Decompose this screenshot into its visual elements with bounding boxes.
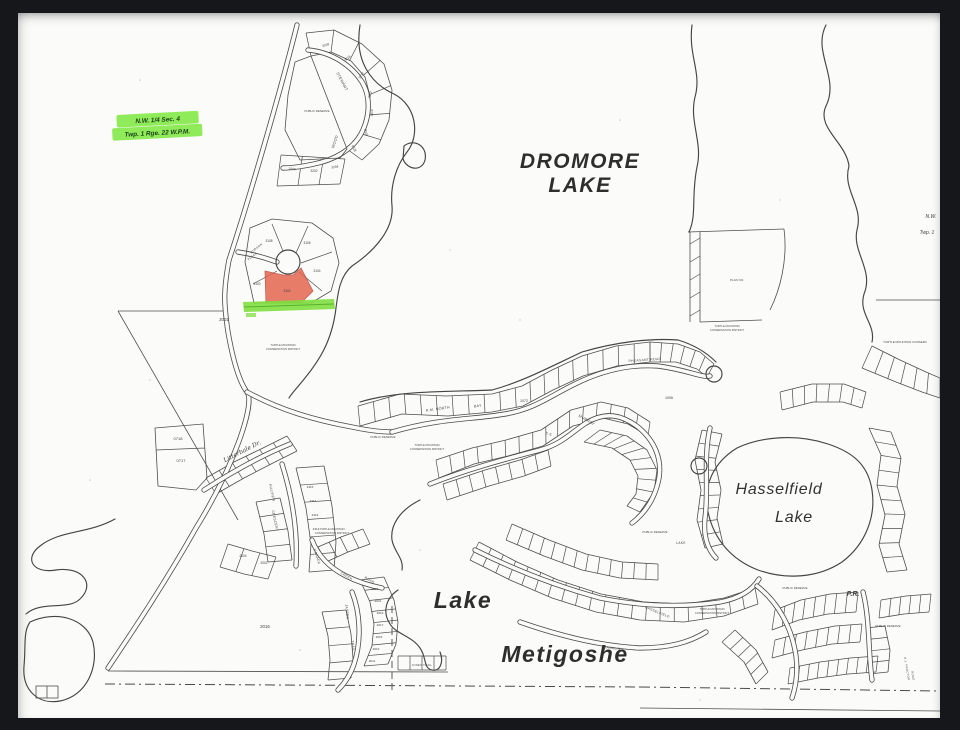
lot-boundary-line: [730, 637, 743, 649]
lot-strip-se-6: [722, 630, 768, 684]
lot-boundary-line: [360, 580, 374, 666]
lot-boundary-line: [509, 463, 512, 479]
plan-road-hatch: [690, 274, 700, 280]
lot-boundary-line: [352, 533, 359, 548]
lot-boundary-line: [788, 672, 876, 684]
subdivision-south-edge: [640, 708, 940, 711]
lot-number: 2315: [307, 485, 314, 489]
lot-boundary-line: [540, 538, 545, 554]
lot-boundary-line: [535, 455, 538, 471]
lot-boundary-line: [528, 533, 533, 549]
hudson-lot-line: [272, 224, 283, 251]
shoreline-hasselfield-lake: [706, 438, 872, 577]
road-label-jasper: JASPER: [344, 604, 350, 620]
label-dromore-lake-2: LAKE: [548, 174, 611, 197]
lot-boundary-line: [522, 459, 525, 475]
lot-boundary-line: [638, 479, 656, 480]
lot-boundary-line: [862, 392, 866, 408]
lot-boundary-line: [277, 184, 340, 186]
road-label-jones-trail: JONES TRAIL: [412, 663, 433, 667]
lot-boundary-line: [548, 450, 551, 466]
plan-parcel-south: [700, 320, 762, 322]
lot-boundary-line: [722, 630, 735, 642]
lot-boundary-line: [452, 396, 453, 416]
lot-boundary-line: [551, 542, 555, 558]
lot-number: 3208: [363, 128, 369, 136]
lot-boundary-line: [881, 455, 901, 458]
lot-boundary-line: [436, 396, 437, 416]
lot-boundary-line: [322, 612, 330, 680]
lot-number-red-parcel: 3102: [283, 289, 290, 293]
lot-strip-hasselfield-east: [869, 428, 907, 572]
lot-boundary-line: [450, 455, 452, 472]
dashed-section-line-bottom-right: [640, 687, 940, 691]
lot-number: 2015: [376, 635, 383, 639]
plat-map-svg: N.W. 1/4 Sec. 4 Twp. 1 Rge. 22 W.P.M. DR…: [18, 13, 940, 718]
lot-boundary-line: [698, 520, 718, 523]
lot-boundary-line: [630, 458, 651, 461]
lot-boundary-line: [621, 562, 622, 578]
lot-strip-murray-upper: [436, 402, 650, 478]
lot-boundary-line: [252, 553, 260, 576]
district-text: CONSERVATION DISTRICT: [315, 531, 350, 535]
lot-boundary-line: [849, 625, 851, 643]
lot-boundary-line: [722, 642, 756, 684]
district-text: TURTLE MOUNTAIN: [714, 324, 739, 328]
road-label-stewart: STEWART: [335, 72, 348, 92]
corner-note-twp: Twp. 1: [920, 230, 935, 236]
lot-boundary-line: [604, 435, 624, 446]
lot-boundary-line: [329, 644, 352, 646]
lot-boundary-line: [468, 395, 469, 414]
lot-boundary-line: [860, 624, 862, 642]
lot-boundary-line: [782, 402, 862, 410]
plan-parcel-east: [770, 229, 785, 310]
lot-boundary-line: [594, 433, 612, 444]
lot-boundary-line: [803, 599, 806, 619]
lot-boundary-line: [816, 629, 819, 647]
shoreline-dromore-pond: [403, 143, 425, 168]
parcel-number-2002: 2002: [260, 561, 267, 565]
parcel-number-1072: 1072: [520, 399, 528, 403]
lot-boundary-line: [515, 388, 516, 408]
lot-boundary-line: [816, 384, 817, 402]
lot-boundary-line: [633, 498, 647, 502]
lot-number: 3210: [370, 109, 374, 116]
lot-boundary-line: [331, 30, 334, 52]
district-label-3: TURTLE MOUNTAIN CONSERVATION DISTRICT: [315, 527, 350, 535]
lot-boundary-line: [914, 368, 917, 389]
lot-boundary-line: [563, 547, 567, 563]
lot-boundary-line: [277, 155, 281, 186]
lot-boundary-line: [586, 555, 589, 571]
district-text: TURTLE MOUNTAIN: [270, 343, 295, 347]
label-pr: P.R.: [847, 591, 860, 598]
lot-boundary-line: [828, 384, 830, 402]
lot-boundary-line: [298, 156, 302, 185]
lot-number: 3108: [265, 239, 272, 243]
lot-boundary-line: [837, 660, 839, 676]
lot-boundary-line: [296, 466, 324, 468]
lot-boundary-line: [690, 350, 696, 366]
parcel-number-0718: 0718: [174, 436, 184, 441]
lot-strip-murray-bend: [584, 430, 657, 512]
lot-boundary-line: [436, 460, 439, 478]
scanned-plat-map-sheet: N.W. 1/4 Sec. 4 Twp. 1 Rge. 22 W.P.M. DR…: [18, 13, 940, 718]
lot-boundary-line: [500, 392, 501, 410]
district-text: TURTLE MOUNTAIN: [414, 443, 439, 447]
lot-boundary-line: [807, 664, 809, 680]
lot-boundary-line: [634, 563, 635, 579]
lot-boundary-line: [879, 470, 899, 473]
lot-boundary-line: [236, 549, 244, 572]
lot-boundary-line: [888, 357, 895, 378]
label-hasselfield-lake-2: Lake: [775, 509, 813, 526]
lot-number: 3202: [310, 169, 317, 173]
district-label-4: TURTLE MOUNTAIN CONSERVATION DISTRICT: [710, 324, 745, 332]
district-label-1: TURTLE MOUNTAIN CONSERVATION DISTRICT: [266, 343, 301, 351]
lot-boundary-line: [588, 354, 589, 374]
lot-number: 3200: [288, 167, 296, 172]
lot-boundary-line: [929, 594, 931, 612]
lot-boundary-line: [871, 649, 890, 651]
lot-strip-ne-edge: [862, 346, 940, 398]
lot-number: 2023: [372, 587, 379, 591]
district-label-right-edge: TURTLE MOUNTAIN CONSERV: [883, 340, 927, 344]
lot-strip-hasselfield-north: [780, 384, 866, 410]
lot-boundary-line: [635, 468, 657, 469]
lot-boundary-line: [817, 662, 819, 678]
lot-boundary-line: [268, 560, 292, 562]
bottom-road-line: [108, 671, 448, 672]
district-text: TURTLE MOUNTAIN: [319, 527, 344, 531]
lot-strip-se-2: [772, 624, 862, 658]
lot-boundary-line: [340, 537, 347, 552]
lot-number: 2013: [373, 647, 380, 651]
road-label-wood: WOOD: [331, 135, 339, 149]
road-label-trail: TRAIL: [350, 640, 355, 651]
lot-boundary-line: [505, 440, 506, 456]
lot-boundary-line: [877, 485, 897, 487]
lot-boundary-line: [827, 627, 829, 645]
lot-boundary-line: [851, 388, 854, 405]
public-reserve-label: PUBLIC RESERVE: [875, 624, 900, 628]
lot-boundary-line: [517, 529, 523, 545]
lot-boundary-line: [919, 595, 921, 613]
lot-boundary-line: [881, 499, 901, 500]
lot-boundary-line: [598, 557, 600, 573]
lot-boundary-line: [305, 500, 331, 502]
lot-boundary-line: [477, 447, 478, 463]
public-reserve-label: PUBLIC RESERVE: [370, 435, 395, 439]
road-murray: [430, 416, 660, 523]
lot-boundary-line: [887, 570, 907, 572]
lot-number: 2314: [310, 499, 317, 503]
lot-boundary-line: [300, 483, 327, 485]
parcel-number-2016: 2016: [260, 624, 270, 629]
district-label-5: TURTLE MOUNTAIN CONSERVATION DISTRICT: [695, 607, 730, 615]
hudson-lot-line: [301, 252, 332, 263]
shoreline-island: [24, 616, 95, 701]
lot-boundary-line: [373, 631, 397, 633]
public-reserve-label: PUBLIC RESERVE: [782, 586, 807, 590]
lot-boundary-line: [780, 384, 866, 392]
section-label-highlight: N.W. 1/4 Sec. 4 Twp. 1 Rge. 22 W.P.M.: [111, 111, 202, 141]
lot-boundary-line: [883, 556, 903, 557]
lot-boundary-line: [309, 570, 334, 572]
lot-number: 2312: [313, 527, 320, 531]
plan-road-hatch: [690, 238, 700, 244]
lot-boundary-line: [875, 442, 896, 446]
district-text: CONSERVATION DISTRICT: [695, 611, 730, 615]
red-highlight-parcel-3102: [265, 268, 313, 303]
lot-boundary-line: [622, 448, 644, 455]
lot-boundary-line: [220, 544, 228, 567]
lot-boundary-line: [340, 159, 345, 184]
lot-boundary-line: [680, 346, 684, 363]
lot-boundary-line: [484, 394, 485, 412]
lot-boundary-line: [813, 597, 815, 617]
lot-number: 2011: [369, 659, 376, 663]
lot-number: 3212: [367, 90, 373, 98]
road-label-proctor-1: R.J. PROCTOR: [903, 657, 911, 681]
lot-boundary-line: [609, 560, 611, 576]
lot-boundary-line: [637, 489, 654, 492]
lot-boundary-line: [792, 602, 795, 622]
lot-boundary-line: [792, 389, 793, 407]
lot-boundary-line: [783, 637, 786, 655]
lot-boundary-line: [228, 544, 276, 557]
parcel-number-2001: 2001: [219, 317, 229, 322]
road-label-north-bay-2: BAY: [474, 403, 483, 408]
screenshot-root: { "frame": {"color": "#16171b"}, "sectio…: [0, 0, 960, 730]
road-label-crescent: CRESCENT: [271, 510, 279, 531]
lot-boundary-line: [790, 656, 878, 668]
road-surface: [247, 392, 392, 432]
lot-boundary-line: [872, 346, 940, 378]
lot-boundary-line: [670, 344, 673, 362]
road-label-es: E.S.: [545, 431, 553, 437]
lot-boundary-line: [772, 640, 775, 658]
lot-number: 2021: [375, 599, 382, 603]
lot-boundary-line: [482, 471, 486, 487]
lot-boundary-line: [456, 480, 460, 496]
lot-boundary-line: [266, 544, 290, 546]
lot-boundary-line: [746, 653, 758, 665]
lot-boundary-line: [404, 394, 406, 414]
lot-strip-se-4: [879, 594, 931, 618]
lot-boundary-line: [584, 442, 638, 506]
lot-number: 2017: [377, 623, 384, 627]
lot-boundary-line: [326, 627, 349, 629]
lot-number: 3104: [313, 269, 320, 273]
lot-boundary-line: [506, 524, 512, 540]
label-hasselfield-lake-1: Hasselfield: [735, 481, 822, 498]
lot-boundary-line: [443, 484, 447, 500]
lot-boundary-line: [876, 656, 878, 672]
parcel-number-0717: 0717: [177, 458, 187, 463]
lot-number: 2313: [312, 513, 319, 517]
shoreline-dromore-east: [689, 25, 699, 232]
shoreline-murray-bay: [392, 500, 420, 570]
lot-boundary-line: [389, 397, 391, 417]
lot-boundary-line: [824, 595, 826, 615]
lot-strip-jasper-west: [322, 610, 353, 680]
lot-boundary-line: [780, 392, 782, 410]
lot-boundary-line: [358, 406, 360, 426]
lot-boundary-line: [735, 630, 768, 672]
lot-boundary-line: [364, 664, 388, 666]
road-se-diagonal: [757, 586, 797, 698]
lot-boundary-line: [420, 395, 422, 415]
lot-boundary-line: [881, 594, 931, 600]
lot-strip-hillview-west: [256, 498, 292, 562]
district-label-2: TURTLE MOUNTAIN CONSERVATION DISTRICT: [410, 443, 445, 451]
lot-boundary-line: [846, 658, 848, 674]
lot-boundary-line: [491, 444, 492, 460]
lot-boundary-line: [901, 363, 906, 384]
lot-boundary-line: [322, 610, 346, 612]
district-text: TURTLE MOUNTAIN: [699, 607, 724, 611]
green-strip-blip: [246, 313, 256, 317]
lot-boundary-line: [870, 660, 889, 662]
district-text: CONSERVATION DISTRICT: [410, 447, 445, 451]
lot-boundary-line: [862, 346, 872, 368]
lot-boundary-line: [512, 524, 658, 564]
dashed-section-line-bottom: [105, 684, 640, 687]
corner-note-nw: N.W.: [926, 214, 937, 220]
lot-number: 3204: [331, 165, 339, 170]
lot-boundary-line: [558, 367, 559, 387]
road-label-lake: LAKE: [676, 541, 686, 545]
lot-boundary-line: [875, 352, 883, 374]
lot-boundary-line: [268, 557, 276, 579]
lot-boundary-line: [463, 451, 465, 468]
lot-boundary-line: [889, 598, 891, 616]
label-lake-metigoshe-1: Lake: [434, 587, 492, 613]
lot-boundary-line: [584, 430, 600, 442]
parcel-number-1006: 1006: [665, 396, 673, 400]
road-surface: [705, 428, 716, 558]
lot-boundary-line: [368, 653, 392, 655]
lot-boundary-line: [838, 626, 840, 644]
lot-boundary-line: [700, 495, 720, 496]
plan-road-hatch: [690, 256, 700, 262]
lot-boundary-line: [573, 360, 574, 380]
lot-number: 3100: [253, 282, 260, 286]
lot-boundary-line: [600, 430, 657, 512]
district-text: CONSERVATION DISTRICT: [266, 347, 301, 351]
lot-boundary-line: [699, 356, 705, 370]
lot-boundary-line: [879, 612, 929, 618]
road-branch-east: [247, 392, 392, 432]
parcel-number-2004: 2004: [239, 554, 246, 558]
public-reserve-label: PUBLIC RESERVE: [642, 530, 667, 534]
shoreline-north-bay-front: [360, 340, 716, 403]
hudson-lot-line: [296, 226, 308, 253]
lot-boundary-line: [827, 661, 829, 677]
lot-boundary-line: [738, 645, 750, 657]
lot-number: 3218: [322, 42, 330, 48]
parcel-0718-0717-outline: [155, 424, 207, 490]
lot-boundary-line: [885, 514, 905, 515]
plan-no-label: PLAN NO.: [730, 278, 744, 282]
shoreline-west-arm: [26, 519, 115, 614]
lot-number: 2019: [377, 611, 384, 615]
lot-boundary-line: [927, 373, 929, 394]
lot-boundary-line: [879, 600, 881, 618]
lot-boundary-line: [310, 535, 335, 537]
shoreline-dromore-west: [289, 25, 415, 398]
lot-boundary-line: [834, 594, 836, 614]
lot-boundary-line: [627, 506, 640, 512]
lot-boundary-line: [755, 588, 758, 604]
shoreline-northeast-bay: [822, 25, 873, 342]
plan-road-hatch: [690, 292, 700, 298]
lot-boundary-line: [840, 384, 843, 402]
public-reserve-label: PUBLIC RESERVE: [304, 109, 329, 113]
district-text: CONSERVATION DISTRICT: [710, 328, 745, 332]
road-label-north-bay-1: R.M. NORTH: [426, 405, 451, 412]
lot-boundary-line: [363, 529, 370, 544]
lot-boundary-line: [530, 382, 531, 402]
lot-boundary-line: [879, 543, 899, 544]
lot-boundary-line: [756, 672, 768, 684]
lot-strip-se-3: [788, 656, 878, 684]
lot-number: 3106: [303, 241, 310, 245]
lot-boundary-line: [772, 610, 775, 630]
lot-boundary-line: [869, 428, 891, 432]
lot-boundary-line: [788, 668, 790, 684]
lot-boundary-line: [220, 567, 268, 579]
lot-boundary-line: [372, 643, 396, 645]
plan-parcel-north: [688, 229, 784, 232]
lot-boundary-line: [613, 441, 634, 449]
plan-road-hatch: [690, 310, 700, 316]
lot-boundary-line: [805, 632, 808, 650]
lot-boundary-line: [856, 657, 858, 673]
lot-boundary-line: [899, 597, 901, 615]
lot-boundary-line: [330, 661, 353, 663]
lot-boundary-line: [715, 434, 723, 544]
lot-boundary-line: [308, 518, 334, 520]
lot-boundary-line: [496, 467, 500, 483]
lot-boundary-line: [909, 596, 911, 614]
lot-boundary-line: [256, 502, 268, 562]
lot-boundary-line: [574, 551, 577, 567]
lot-boundary-line: [469, 475, 473, 491]
lot-boundary-line: [373, 402, 375, 422]
label-dromore-lake-1: DROMORE: [520, 150, 640, 173]
lot-boundary-line: [751, 663, 763, 675]
lot-boundary-line: [544, 374, 545, 394]
